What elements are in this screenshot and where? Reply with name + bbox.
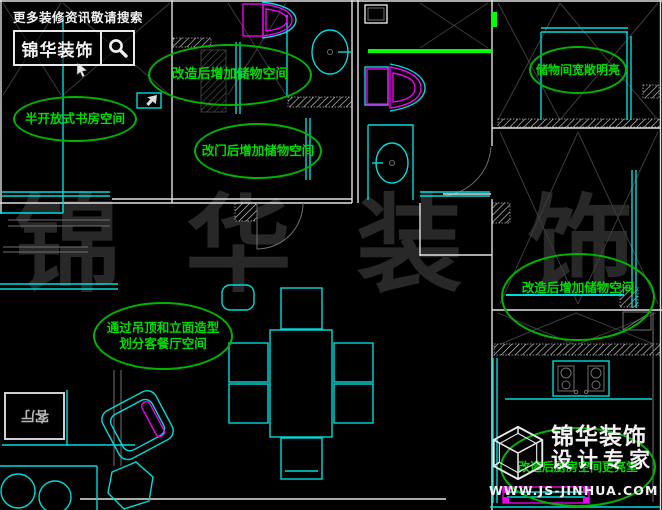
annotation-bright-storage-room: 储物间宽敞明亮 xyxy=(529,46,627,94)
selection-arrow-icon xyxy=(137,93,161,108)
kitchen xyxy=(553,361,609,396)
annotation-underline xyxy=(506,294,624,296)
header-tagline: 更多装修资讯敬请搜索 xyxy=(13,7,143,26)
toilet-icon xyxy=(365,64,425,111)
bathroom-right xyxy=(365,64,425,200)
dining-chair xyxy=(281,288,322,329)
vanity-sink-icon xyxy=(368,125,413,200)
sofa xyxy=(0,466,97,510)
footer-subtitle: 设计专家 xyxy=(551,449,655,471)
footer-brand-logo: 锦华装饰 设计专家 WWW.JS-JINHUA.COM xyxy=(489,425,661,498)
armchair xyxy=(98,387,176,463)
footer-brand-name: 锦华装饰 xyxy=(551,425,655,449)
annotation-storage-added-top: 改造后增加储物空间 xyxy=(148,44,312,106)
toilet-icon xyxy=(243,2,296,38)
footer-website: WWW.JS-JINHUA.COM xyxy=(489,483,661,498)
header-brand-logo: 更多装修资讯敬请搜索 锦华装饰 xyxy=(13,7,143,66)
living-room-label: 客厅 xyxy=(4,392,65,440)
dining-chair xyxy=(334,384,373,423)
cube-logo-icon xyxy=(489,425,547,481)
dining-chair xyxy=(229,384,268,423)
dining-chair xyxy=(229,343,268,382)
dining-chair xyxy=(334,343,373,382)
annotation-storage-added-right: 改造后增加储物空间 xyxy=(501,253,655,341)
annotation-ceiling-divides-rooms: 通过吊顶和立面造型 划分客餐厅空间 xyxy=(93,302,233,370)
brand-name: 锦华装饰 xyxy=(15,32,100,64)
floorplan-canvas: 锦 华 装 饰 xyxy=(0,0,662,510)
dining-table xyxy=(270,330,332,437)
dining-table-set xyxy=(229,288,373,479)
dining-chair xyxy=(281,438,322,479)
stove-icon xyxy=(553,361,609,396)
magnifier-icon xyxy=(102,32,133,64)
side-table xyxy=(108,462,153,509)
annotation-open-study: 半开放式书房空间 xyxy=(13,96,137,142)
annotation-door-change-storage: 改门后增加储物空间 xyxy=(194,123,322,179)
brand-search-box: 锦华装饰 xyxy=(13,30,135,66)
sink-icon xyxy=(312,30,352,74)
